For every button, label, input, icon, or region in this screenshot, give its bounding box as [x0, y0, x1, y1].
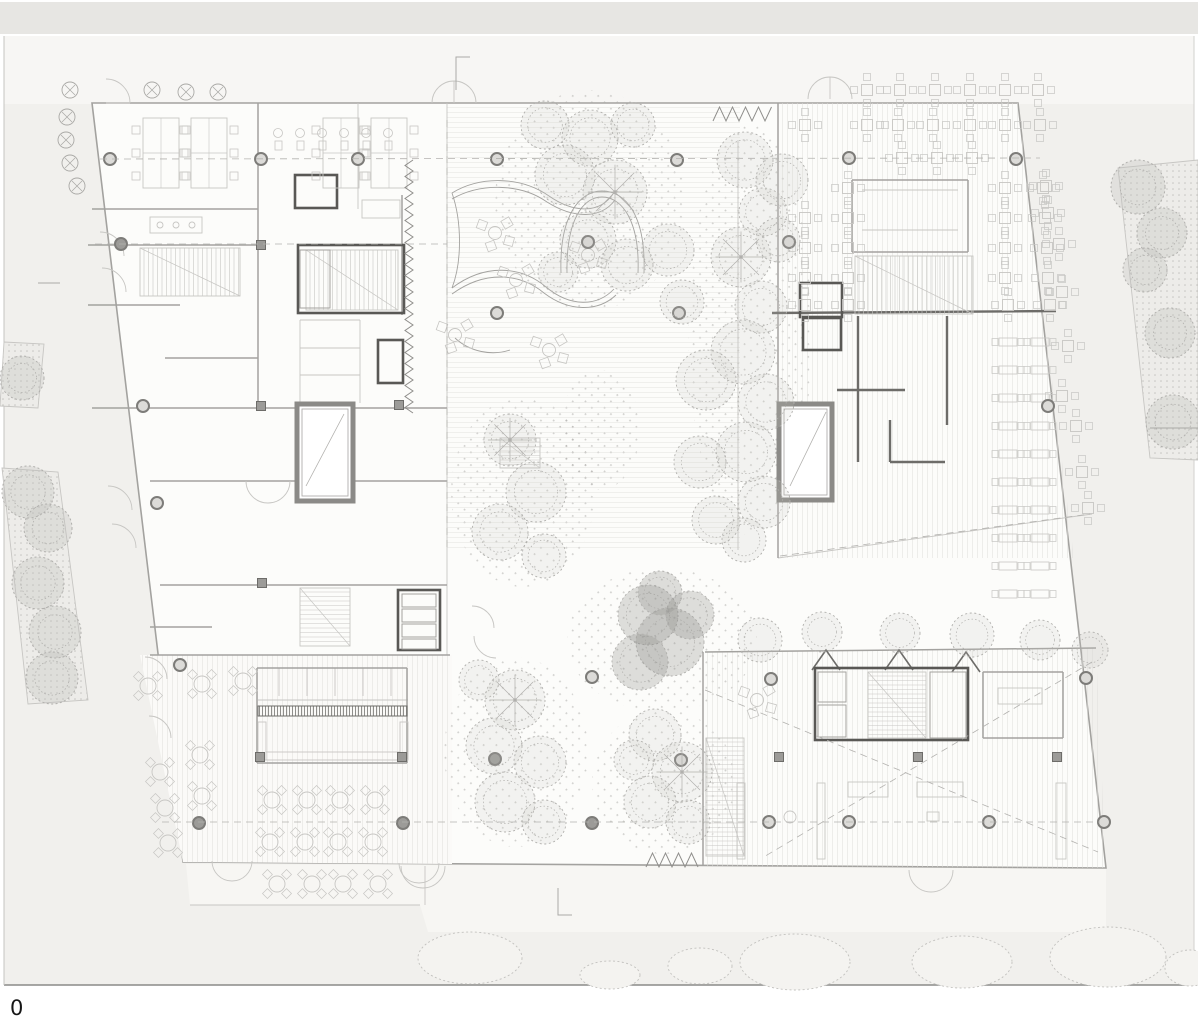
document-page: 0	[0, 0, 1198, 1024]
page-number-label: 0	[10, 996, 23, 1020]
floor-plan-drawing	[0, 0, 1198, 1024]
